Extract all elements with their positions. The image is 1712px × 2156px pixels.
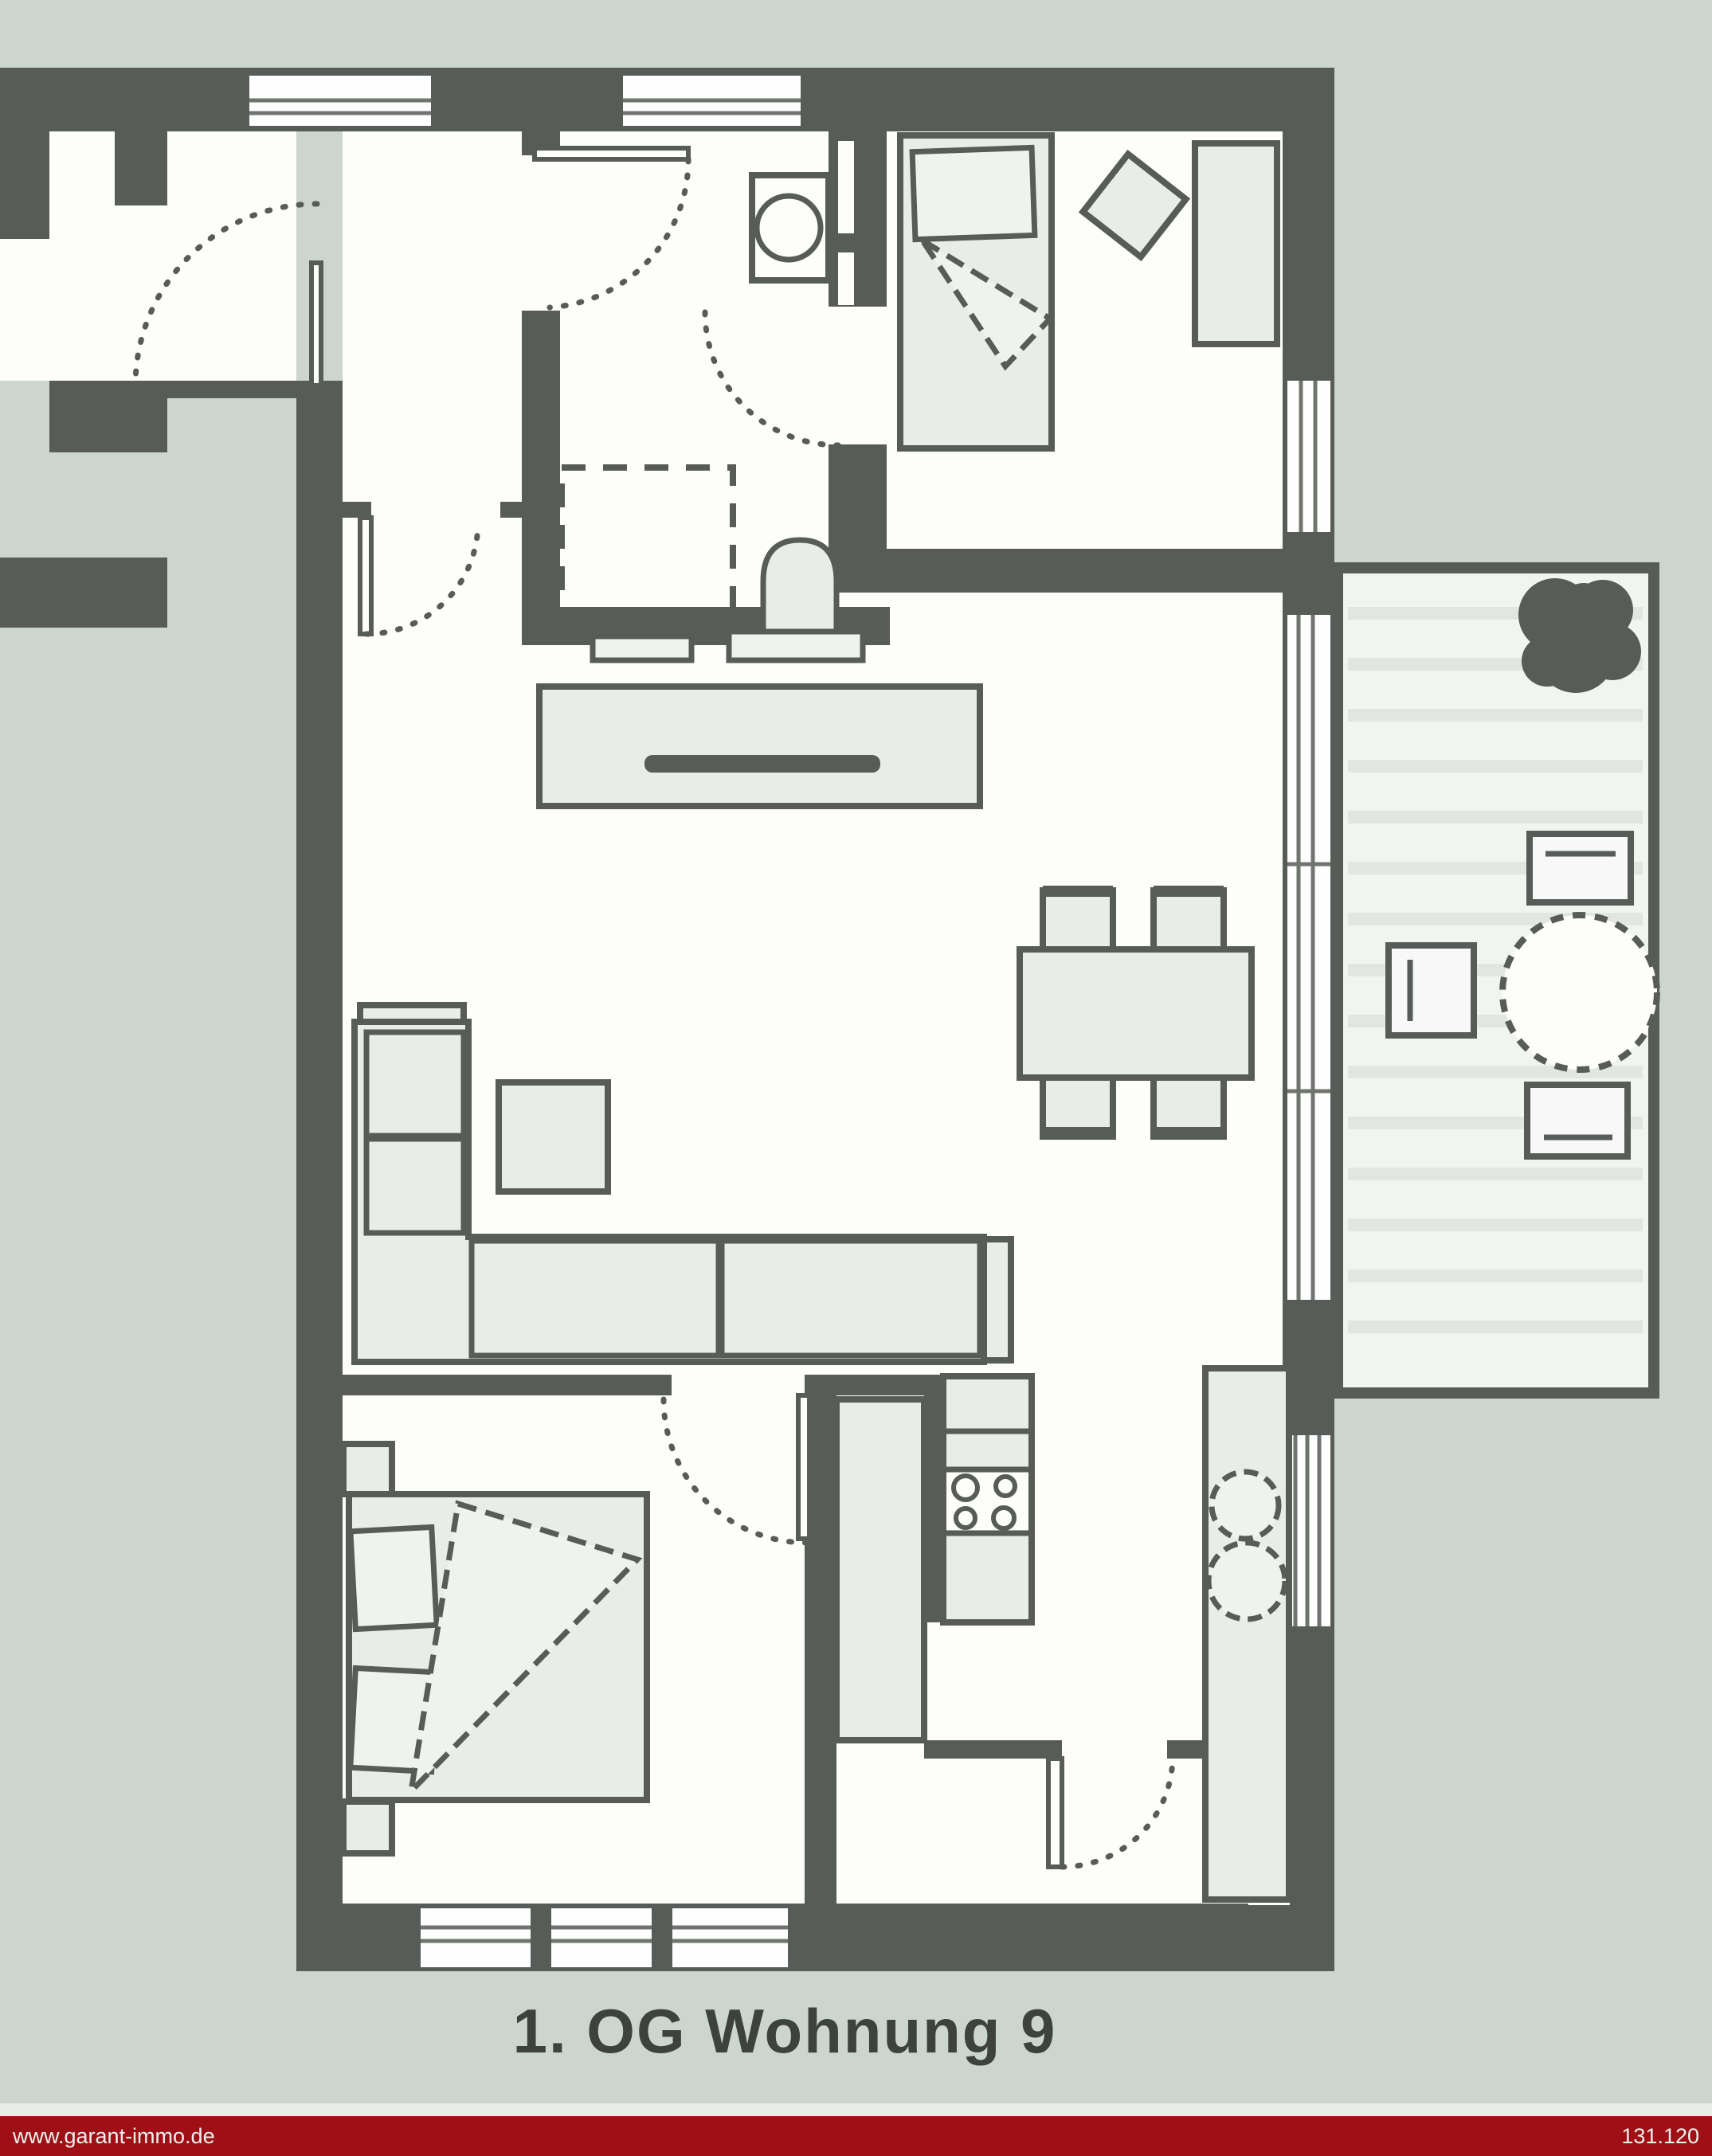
- wall-living-bedroom-divider: [343, 1375, 672, 1395]
- dining-chair-2: [1154, 886, 1224, 949]
- tree-icon: [1518, 578, 1641, 693]
- wall-shaft: [829, 131, 887, 307]
- window-top-2: [623, 76, 801, 126]
- wall-left: [296, 381, 343, 1971]
- stair-landing-floor: [49, 131, 296, 381]
- window-kitchen-right: [1287, 1435, 1330, 1626]
- sofa-armrest: [984, 1239, 1011, 1360]
- balcony-chair-top: [1530, 834, 1631, 902]
- wall-kitchen-top: [805, 1375, 927, 1395]
- dining-table: [1020, 949, 1252, 1078]
- balcony-round-table: [1502, 915, 1657, 1070]
- wall-entry-stub: [115, 131, 167, 205]
- sideboard: [539, 687, 980, 806]
- double-bed-pillow-1: [351, 1527, 437, 1629]
- wall-kitchen-stub-right: [1167, 1740, 1205, 1759]
- footer-plan-number: 131.120: [1621, 2124, 1699, 2149]
- window-bedroom-bottom: [421, 1908, 788, 1967]
- dining-chair-1: [1043, 886, 1113, 949]
- floor-caption: 1. OG Wohnung 9: [513, 1995, 1057, 2068]
- kitchen-counter-right: [1205, 1368, 1289, 1900]
- wall-kitchen-stub-left: [924, 1740, 1062, 1759]
- wall-landing-stub: [49, 398, 167, 452]
- page: 1. OG Wohnung 9 www.garant-immo.de 131.1…: [0, 0, 1712, 2156]
- stove: [946, 1473, 1028, 1530]
- window-living-slider: [1287, 615, 1330, 1300]
- wall-hall-jamb-right: [500, 502, 534, 518]
- window-bedroom-right: [1287, 381, 1330, 532]
- footer-url: www.garant-immo.de: [13, 2124, 215, 2149]
- shaft-slit-2: [838, 252, 854, 305]
- toilet-bowl: [763, 540, 836, 632]
- dining-chair-4: [1154, 1078, 1224, 1138]
- shower-tray: [593, 636, 691, 660]
- window-top-1: [249, 76, 431, 126]
- kitchen-counter-left: [836, 1399, 924, 1740]
- desk: [1195, 143, 1277, 344]
- wall-landing-left: [0, 68, 49, 239]
- bedroom-bottom: [343, 1444, 647, 1853]
- coffee-table: [499, 1082, 608, 1191]
- nightstand-1: [343, 1444, 392, 1494]
- hallway: [539, 687, 980, 806]
- washbasin: [752, 175, 829, 280]
- wall-bath-left: [522, 311, 560, 645]
- balcony-chair-bottom: [1527, 1085, 1628, 1156]
- toilet-cistern: [729, 632, 863, 660]
- nightstand-2: [343, 1802, 392, 1853]
- dining-chair-3: [1043, 1078, 1113, 1138]
- single-bed-pillow: [912, 147, 1035, 239]
- sideboard-handle: [644, 755, 880, 773]
- stair-landing-floor-left: [0, 239, 49, 381]
- floor-plan-svg: [0, 0, 1712, 2156]
- balcony-chair-left: [1389, 945, 1474, 1035]
- wall-neighbor-stub: [0, 558, 167, 628]
- shaft-slit-1: [838, 141, 854, 233]
- footer-shadow-strip: [0, 2103, 1712, 2116]
- balcony: [1338, 568, 1657, 1393]
- wall-landing-thin: [49, 381, 319, 398]
- wall-bedroom-bottom: [829, 549, 1283, 593]
- footer-bar: www.garant-immo.de 131.120: [0, 2116, 1712, 2156]
